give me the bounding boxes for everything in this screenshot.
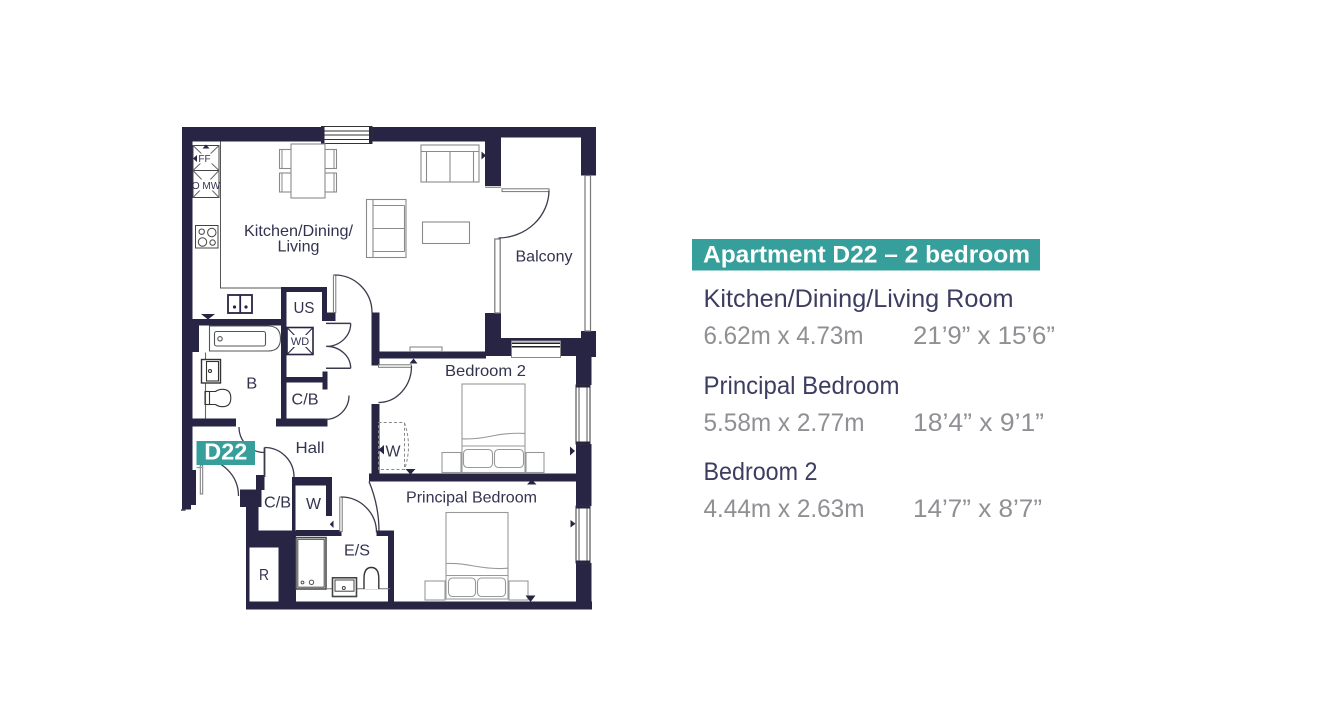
svg-text:6.62m x 4.73m: 6.62m x 4.73m (704, 322, 864, 350)
svg-text:FF: FF (198, 154, 210, 165)
svg-text:Principal Bedroom: Principal Bedroom (704, 372, 900, 400)
svg-text:21’9” x 15’6”: 21’9” x 15’6” (913, 322, 1055, 350)
svg-text:Hall: Hall (296, 440, 325, 457)
svg-text:B: B (246, 376, 257, 393)
svg-text:Bedroom 2: Bedroom 2 (704, 458, 818, 486)
svg-text:W: W (386, 444, 402, 461)
svg-text:O MW: O MW (192, 181, 221, 192)
svg-text:US: US (294, 300, 315, 317)
svg-text:C/B: C/B (264, 495, 291, 512)
svg-text:D22: D22 (204, 439, 247, 465)
svg-text:E/S: E/S (344, 543, 370, 560)
svg-text:Bedroom 2: Bedroom 2 (445, 363, 526, 380)
svg-text:4.44m x 2.63m: 4.44m x 2.63m (704, 495, 865, 523)
svg-text:Apartment D22 – 2 bedroom: Apartment D22 – 2 bedroom (703, 242, 1030, 269)
svg-text:WD: WD (291, 336, 309, 348)
svg-text:Kitchen/Dining/: Kitchen/Dining/ (244, 223, 354, 240)
svg-text:14’7” x 8’7”: 14’7” x 8’7” (913, 495, 1042, 523)
svg-text:5.58m x 2.77m: 5.58m x 2.77m (704, 409, 865, 437)
svg-text:Kitchen/Dining/Living Room: Kitchen/Dining/Living Room (704, 285, 1014, 313)
svg-text:W: W (306, 496, 322, 513)
svg-text:Living: Living (278, 239, 320, 256)
svg-text:R: R (259, 567, 269, 584)
svg-text:18’4” x 9’1”: 18’4” x 9’1” (913, 409, 1044, 437)
svg-text:C/B: C/B (292, 392, 319, 409)
svg-text:Principal Bedroom: Principal Bedroom (406, 490, 537, 507)
svg-text:Balcony: Balcony (516, 249, 573, 266)
